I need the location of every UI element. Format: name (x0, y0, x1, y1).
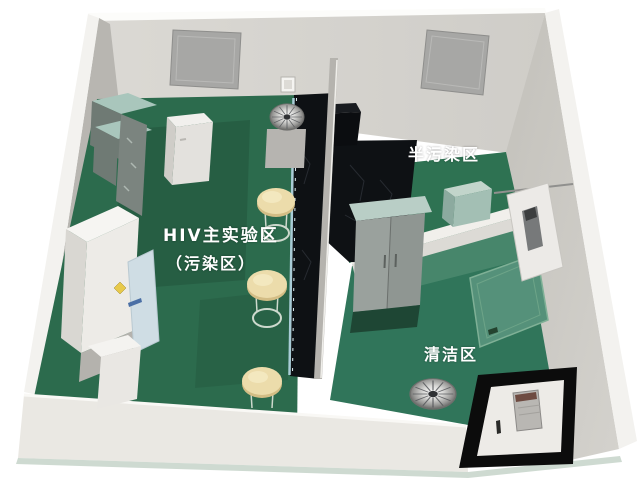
back-wall-window-right (421, 30, 489, 95)
label-main-zone: HIV主实验区 (163, 221, 279, 246)
label-semi-zone: 半污染区 (408, 141, 480, 165)
lab-3d-rendering: HIV主实验区 （污染区） 半污染区 清洁区 (0, 0, 640, 479)
washer-unit (164, 113, 213, 185)
centrifuge-fan (265, 104, 306, 168)
label-main-zone-sub: （污染区） (166, 250, 256, 274)
entrance-door (459, 367, 577, 468)
label-clean-zone: 清洁区 (424, 341, 478, 365)
floor-vent-fan (410, 379, 456, 410)
light-switch (281, 77, 295, 92)
back-wall-window-left (170, 30, 241, 89)
lab-scene-canvas (0, 0, 640, 479)
pass-box (442, 181, 492, 227)
